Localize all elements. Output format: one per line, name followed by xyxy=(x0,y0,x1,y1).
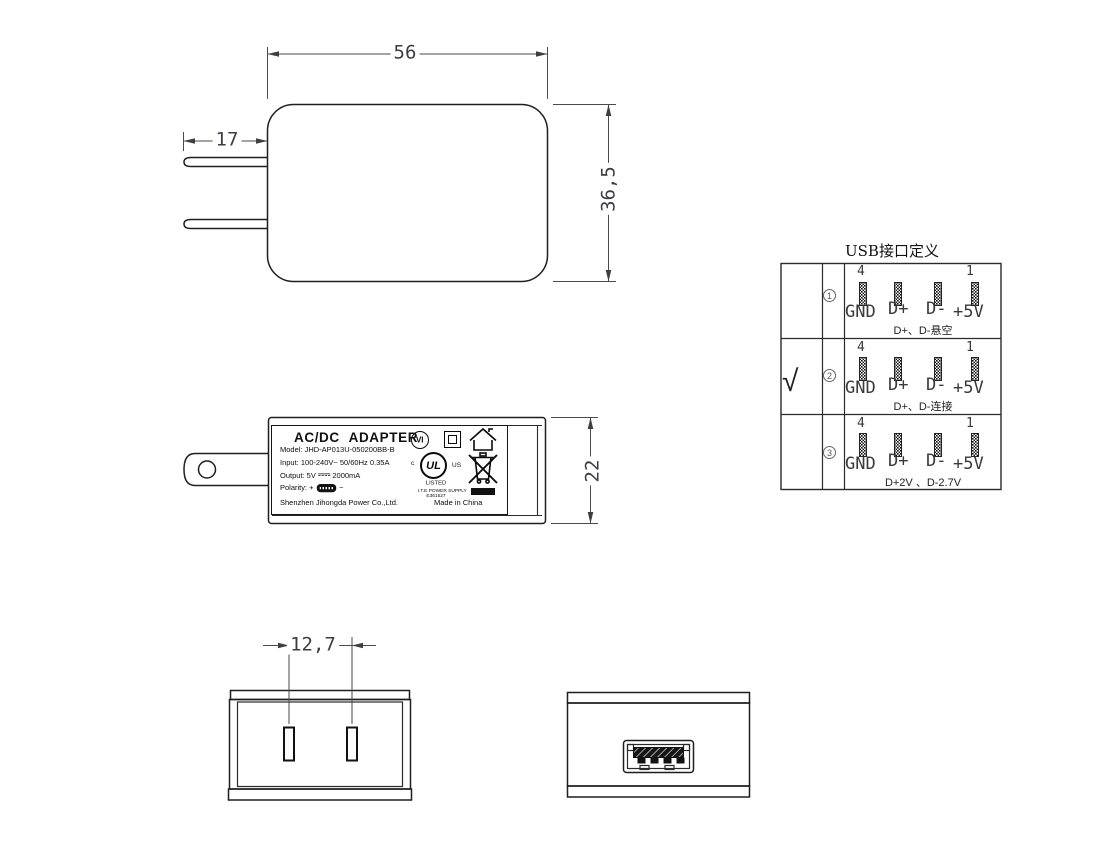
ul-ite-text: I.T.E.POWER SUPPLY xyxy=(418,488,454,493)
dim-body-depth: 22 xyxy=(584,457,603,486)
label-output: Output: 5V2000mA xyxy=(280,472,360,480)
front-view-outline xyxy=(184,47,617,282)
ul-file-number: E361527 xyxy=(418,493,454,498)
row1-number: 1 xyxy=(823,289,836,302)
label-input: Input: 100-240V~ 50/60Hz 0.35A xyxy=(280,459,389,467)
pinout-table-title: USB接口定义 xyxy=(845,240,939,261)
row1-5v: +5V xyxy=(953,304,984,321)
row2-dminus: D- xyxy=(926,377,946,394)
row1-dminus: D- xyxy=(926,301,946,318)
blade-side xyxy=(184,454,269,486)
row3-dplus: D+ xyxy=(888,453,908,470)
indoor-use-icon xyxy=(468,427,498,452)
polarity-plus: + xyxy=(309,484,313,492)
output-prefix: Output: 5V xyxy=(280,472,316,480)
dim-body-width: 56 xyxy=(391,44,420,63)
row3-dminus: D- xyxy=(926,453,946,470)
usb-plug-icon xyxy=(317,484,337,492)
linework-layer xyxy=(0,0,1100,861)
dim-blade-pitch: 12,7 xyxy=(287,636,339,655)
row1-gnd: GND xyxy=(845,304,876,321)
row3-pin1: 1 xyxy=(966,417,974,430)
ul-mark-icon: UL xyxy=(420,452,447,479)
output-suffix: 2000mA xyxy=(332,472,360,480)
adapter-drawing-page: 56 17 36,5 22 12,7 AC/DC ADAPTER Model: … xyxy=(0,0,1100,861)
usb-port-icon xyxy=(624,741,694,773)
row2-note: D+、D-连接 xyxy=(845,398,1001,414)
ul-us-letter: US xyxy=(452,462,461,469)
row3-note: D+2V 、D-2.7V xyxy=(845,474,1001,490)
row2-5v: +5V xyxy=(953,380,984,397)
product-label: AC/DC ADAPTER Model: JHD-AP013U-050200BB… xyxy=(271,425,508,515)
efficiency-vi-icon: VI xyxy=(411,431,429,449)
label-polarity: Polarity: +− xyxy=(280,484,343,492)
ul-listed-text: LISTED xyxy=(419,480,453,486)
row1-pin4: 4 xyxy=(857,265,865,278)
class-ii-icon xyxy=(444,431,461,448)
row1-pin1: 1 xyxy=(966,265,974,278)
polarity-label: Polarity: xyxy=(280,484,307,492)
blade-lower xyxy=(184,220,268,229)
row3-number: 3 xyxy=(823,446,836,459)
row2-pin1: 1 xyxy=(966,341,974,354)
row3-5v: +5V xyxy=(953,456,984,473)
row2-pin4: 4 xyxy=(857,341,865,354)
row2-dplus: D+ xyxy=(888,377,908,394)
label-company: Shenzhen Jihongda Power Co.,Ltd. xyxy=(280,499,398,507)
usb-face-view xyxy=(568,693,750,798)
blade-hole xyxy=(199,461,216,478)
row3-gnd: GND xyxy=(845,456,876,473)
blade-slot-left xyxy=(284,728,294,761)
blade-upper xyxy=(184,158,268,167)
row1-dplus: D+ xyxy=(888,301,908,318)
label-model: Model: JHD-AP013U-050200BB-B xyxy=(280,446,395,454)
row3-pin4: 4 xyxy=(857,417,865,430)
blade-slot-right xyxy=(347,728,357,761)
dim-body-height: 36,5 xyxy=(600,163,619,215)
dc-symbol-icon xyxy=(318,473,330,478)
dim-blade-length: 17 xyxy=(213,131,242,150)
label-made-in: Made in China xyxy=(434,499,482,507)
row2-number: 2 xyxy=(823,369,836,382)
row2-gnd: GND xyxy=(845,380,876,397)
weee-bin-icon xyxy=(468,452,498,497)
bottom-view-outline xyxy=(229,637,412,800)
polarity-minus: − xyxy=(339,484,343,492)
label-title: AC/DC ADAPTER xyxy=(294,430,418,445)
ul-c-letter: c xyxy=(411,460,414,467)
row1-note: D+、D-悬空 xyxy=(845,322,1001,338)
selected-checkmark: √ xyxy=(782,364,798,399)
